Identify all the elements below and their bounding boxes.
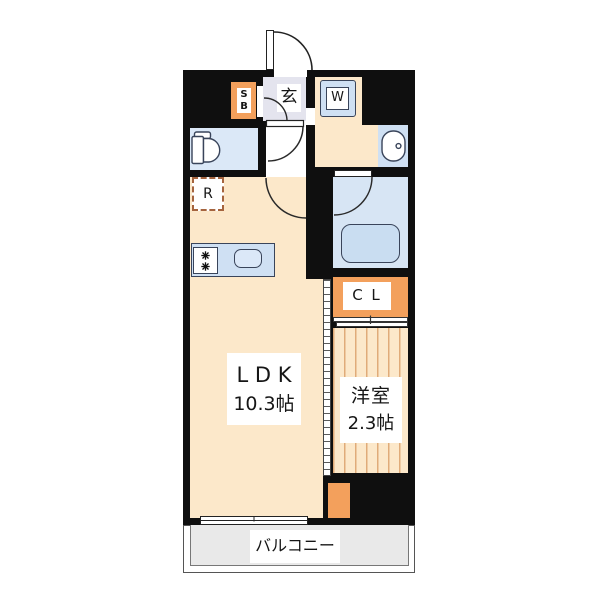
- western-room-size: 2.3帖: [348, 414, 395, 435]
- shoe-box-s: S: [240, 89, 247, 101]
- genkan-label: 玄: [277, 84, 301, 112]
- refrigerator-text: R: [203, 186, 213, 202]
- wall-ldk-bathroom: [306, 165, 333, 279]
- shoe-box-label: S B: [237, 88, 251, 113]
- pipe-space-block: [328, 483, 350, 518]
- washroom-doorway: [306, 108, 315, 125]
- closet-label: C L: [343, 282, 391, 310]
- western-room-label: 洋室 2.3帖: [340, 377, 402, 443]
- ldk-room: [190, 177, 323, 518]
- ldk-window: [200, 516, 308, 525]
- bathtub: [341, 224, 400, 263]
- floor-plan: 玄 S B W C L 洋室 2.3帖 R L D K: [0, 0, 600, 600]
- shoe-box-front: [257, 86, 263, 117]
- stove: [193, 247, 218, 274]
- ldk-label: L D K 10.3帖: [227, 353, 301, 425]
- shoe-box-b: B: [240, 101, 248, 113]
- closet-rail-bottom: [336, 322, 408, 327]
- entrance-door-leaf: [266, 30, 274, 70]
- washer-label: W: [326, 87, 349, 110]
- kitchen-sink: [234, 249, 262, 268]
- sliding-partition: [323, 279, 331, 476]
- washroom-floor-lower: [362, 125, 378, 167]
- washer-text: W: [331, 91, 344, 106]
- toilet-room: [190, 128, 258, 170]
- balcony-label: バルコニー: [250, 530, 340, 563]
- closet-text: C L: [352, 287, 382, 304]
- ldk-size: 10.3帖: [233, 394, 294, 416]
- entrance-door-arc: [274, 32, 312, 70]
- corridor-floor: [266, 121, 306, 177]
- bathroom-door-leaf: [334, 170, 372, 177]
- vanity-counter: [378, 125, 408, 167]
- western-room-name: 洋室: [351, 386, 391, 408]
- ldk-name: L D K: [237, 363, 292, 387]
- genkan-text: 玄: [281, 88, 298, 108]
- entrance-opening: [274, 70, 307, 77]
- balcony-text: バルコニー: [255, 537, 335, 555]
- refrigerator-space: R: [192, 177, 224, 211]
